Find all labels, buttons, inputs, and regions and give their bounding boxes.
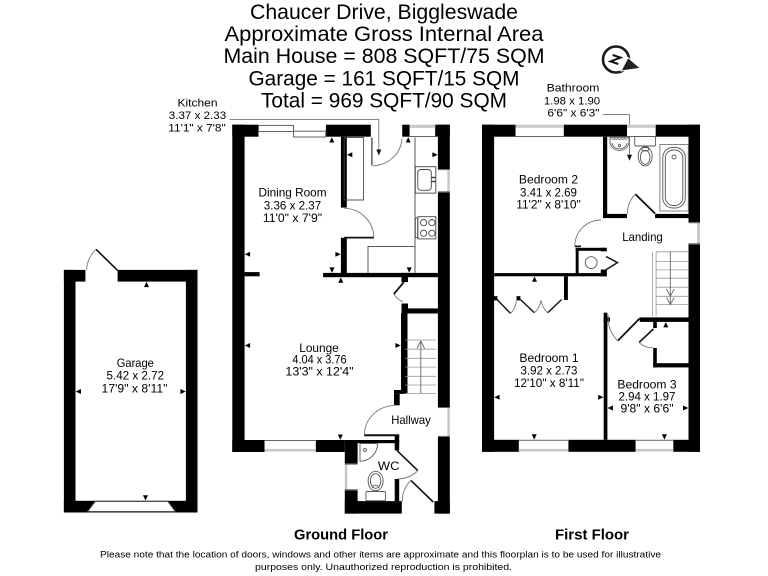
svg-text:11'1" x 7'8": 11'1" x 7'8" — [168, 123, 226, 135]
svg-text:Landing: Landing — [622, 230, 663, 244]
svg-text:6'6" x 6'3": 6'6" x 6'3" — [547, 108, 599, 120]
svg-text:9'8" x 6'6": 9'8" x 6'6" — [621, 402, 674, 416]
svg-text:Main House = 808 SQFT/75 SQM: Main House = 808 SQFT/75 SQM — [224, 44, 545, 68]
svg-text:Kitchen: Kitchen — [178, 98, 218, 110]
svg-text:Bathroom: Bathroom — [547, 83, 600, 95]
svg-text:1.98 x 1.90: 1.98 x 1.90 — [544, 96, 600, 108]
svg-text:Approximate Gross Internal Are: Approximate Gross Internal Area — [225, 22, 544, 46]
svg-text:17'9" x 8'11": 17'9" x 8'11" — [102, 381, 168, 395]
svg-text:Chaucer Drive, Biggleswade: Chaucer Drive, Biggleswade — [250, 0, 518, 24]
svg-text:3.37 x 2.33: 3.37 x 2.33 — [169, 110, 226, 122]
svg-text:Total = 969 SQFT/90 SQM: Total = 969 SQFT/90 SQM — [261, 89, 507, 113]
svg-text:11'2" x 8'10": 11'2" x 8'10" — [516, 198, 580, 212]
svg-text:13'3" x 12'4": 13'3" x 12'4" — [285, 364, 353, 378]
svg-text:purposes only. Unauthorized re: purposes only. Unauthorized reproduction… — [255, 562, 512, 572]
svg-text:WC: WC — [378, 459, 400, 473]
svg-text:5.42 x 2.72: 5.42 x 2.72 — [107, 368, 165, 382]
svg-text:Please note that the location: Please note that the location of doors, … — [100, 550, 661, 560]
svg-text:11'0" x 7'9": 11'0" x 7'9" — [263, 211, 322, 225]
svg-text:12'10" x 8'11": 12'10" x 8'11" — [514, 376, 584, 390]
svg-text:First Floor: First Floor — [555, 527, 629, 544]
svg-text:Garage = 161 SQFT/15 SQM: Garage = 161 SQFT/15 SQM — [249, 66, 520, 90]
svg-text:Hallway: Hallway — [391, 413, 431, 427]
svg-text:Ground Floor: Ground Floor — [294, 527, 388, 544]
